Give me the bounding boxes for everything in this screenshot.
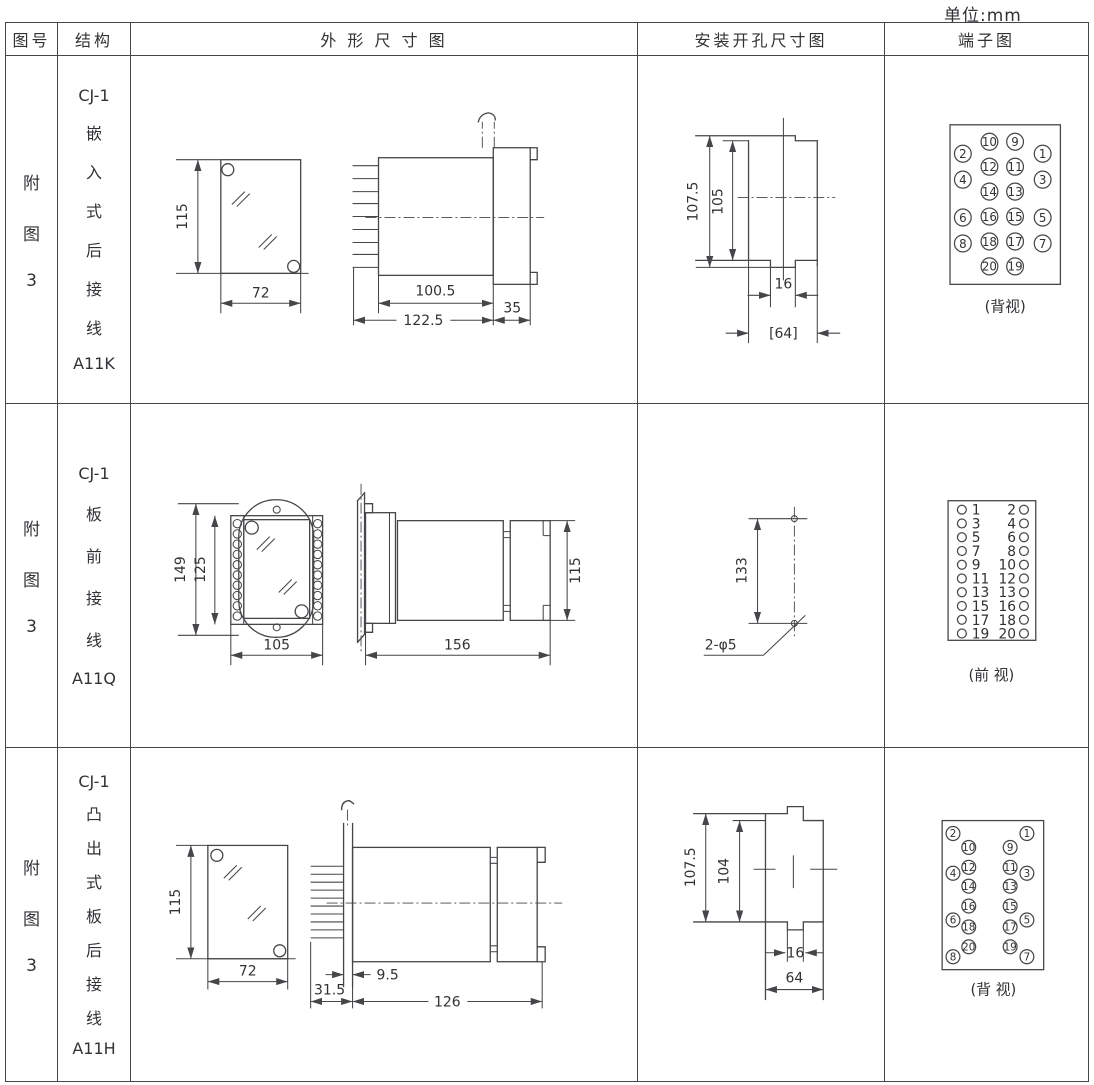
terminal-hole bbox=[957, 519, 966, 528]
terminal-number: 1 bbox=[1024, 828, 1031, 840]
terminal-hole bbox=[957, 615, 966, 624]
col-header-structure: 结构 bbox=[58, 23, 131, 56]
terminal-number: 5 bbox=[1024, 915, 1031, 927]
terminal-number: 1 bbox=[1039, 147, 1047, 161]
dim-cutout-inner-height: 105 bbox=[711, 188, 727, 215]
structure-line: CJ-1 bbox=[78, 772, 109, 791]
terminal-number: 14 bbox=[982, 185, 997, 199]
terminal-box bbox=[942, 821, 1043, 970]
terminal-number: 14 bbox=[962, 881, 976, 893]
terminal-number: 17 bbox=[1004, 922, 1017, 934]
outline-drawing-a11h: 115 72 9.5 31.5 126 bbox=[131, 748, 637, 1081]
structure-line: 出 bbox=[86, 835, 102, 859]
structure-line: 接 bbox=[86, 971, 102, 995]
terminal-strip-holes bbox=[233, 519, 322, 620]
structure-line: CJ-1 bbox=[78, 464, 109, 483]
terminal-number: 2 bbox=[959, 147, 967, 161]
terminal-number: 11 bbox=[1004, 862, 1017, 874]
terminal-number: 15 bbox=[1004, 901, 1017, 913]
figure-no-char: 图 bbox=[23, 905, 40, 930]
terminal-number: 13 bbox=[1004, 881, 1017, 893]
terminal-number: 7 bbox=[1024, 951, 1031, 963]
terminal-hole bbox=[1020, 505, 1029, 514]
terminal-hole bbox=[957, 574, 966, 583]
terminal-number: 19 bbox=[972, 626, 990, 642]
outline-drawing-a11q: 149 125 105 115 156 bbox=[131, 404, 637, 747]
dim-slot-width: 64 bbox=[786, 971, 804, 987]
structure-line: 式 bbox=[86, 198, 102, 222]
terminal-number: 10 bbox=[982, 135, 997, 149]
figure-no-char: 3 bbox=[26, 271, 37, 291]
terminal-number: 6 bbox=[950, 915, 957, 927]
terminal-number: 12 bbox=[982, 160, 997, 174]
dim-flange-thickness: 9.5 bbox=[377, 968, 399, 984]
terminal-number: 18 bbox=[962, 922, 975, 934]
terminal-number: 16 bbox=[962, 901, 975, 913]
dim-body-length: 126 bbox=[434, 994, 461, 1010]
dim-hole-callout: 2-φ5 bbox=[705, 637, 737, 653]
terminal-number: 9 bbox=[1011, 135, 1019, 149]
terminal-hole bbox=[957, 546, 966, 555]
install-drawing-a11k: 107.5 105 16 [64] bbox=[638, 56, 884, 403]
terminal-number: 15 bbox=[1008, 210, 1023, 224]
structure-line: CJ-1 bbox=[78, 86, 109, 105]
view-label: (背 视) bbox=[971, 981, 1017, 998]
figure-no-char: 附 bbox=[23, 515, 40, 540]
terminal-number: 5 bbox=[1039, 211, 1047, 225]
row1-structure: CJ-1 嵌 入 式 后 接 线 A11K bbox=[58, 56, 131, 404]
terminal-number: 6 bbox=[959, 211, 967, 225]
row2-figure-no: 附 图 3 bbox=[6, 404, 58, 748]
terminal-hole bbox=[1020, 574, 1029, 583]
view-label: (背视) bbox=[985, 297, 1026, 315]
terminal-hole bbox=[1020, 629, 1029, 638]
structure-line: A11K bbox=[73, 354, 115, 373]
dim-total-length: 122.5 bbox=[403, 313, 443, 329]
structure-line: 凸 bbox=[86, 801, 102, 825]
structure-line: 板 bbox=[86, 903, 102, 927]
terminal-diagram-rear-view: (背 视) 1012141618209111315171921874635 bbox=[885, 748, 1088, 1081]
structure-line: 线 bbox=[86, 627, 102, 651]
structure-line: A11H bbox=[72, 1039, 115, 1058]
install-drawing-a11h: 107.5 104 16 64 bbox=[638, 748, 884, 1081]
outline-drawing-a11k: 115 72 100.5 122.5 35 bbox=[131, 56, 637, 403]
dim-cutout-outer-height: 107.5 bbox=[686, 182, 702, 222]
row3-install-cell: 107.5 104 16 64 bbox=[638, 748, 885, 1081]
terminal-diagram-rear-view: (背视) 1091211141316151817201924681357 bbox=[885, 56, 1088, 403]
terminal-hole bbox=[957, 602, 966, 611]
col-header-terminal: 端子图 bbox=[885, 23, 1088, 56]
page: { "unit_label": "单位:mm", "header": ["图号"… bbox=[0, 0, 1094, 1085]
row2-install-cell: 133 2-φ5 bbox=[638, 404, 885, 748]
terminal-hole bbox=[957, 505, 966, 514]
dim-cutout-inner-height: 104 bbox=[717, 858, 733, 885]
dim-case-height: 125 bbox=[193, 556, 209, 583]
dim-notch-width: 16 bbox=[775, 276, 793, 292]
terminal-diagram-front-view: (前 视) 1234567891011121313151617181920 bbox=[885, 404, 1088, 747]
dim-slot-width: [64] bbox=[769, 326, 798, 342]
structure-line: 线 bbox=[86, 1005, 102, 1029]
terminal-hole bbox=[1020, 533, 1029, 542]
col-header-figure-no: 图号 bbox=[6, 23, 58, 56]
terminal-number: 20 bbox=[982, 260, 997, 274]
terminal-box bbox=[948, 501, 1036, 641]
row3-structure: CJ-1 凸 出 式 板 后 接 线 A11H bbox=[58, 748, 131, 1081]
terminal-number: 4 bbox=[959, 173, 967, 187]
row1-terminal-cell: (背视) 1091211141316151817201924681357 bbox=[885, 56, 1088, 404]
terminal-hole bbox=[1020, 546, 1029, 555]
terminal-number: 13 bbox=[1008, 185, 1023, 199]
terminal-number: 10 bbox=[962, 842, 975, 854]
install-drawing-a11q: 133 2-φ5 bbox=[638, 404, 884, 747]
dimension-table: 图号 结构 外 形 尺 寸 图 安装开孔尺寸图 端子图 附 图 3 CJ-1 嵌… bbox=[5, 22, 1089, 1082]
dim-front-height: 115 bbox=[175, 203, 191, 230]
row3-terminal-cell: (背 视) 1012141618209111315171921874635 bbox=[885, 748, 1088, 1081]
terminal-hole bbox=[1020, 602, 1029, 611]
terminal-number: 18 bbox=[982, 235, 997, 249]
dim-flange-depth: 35 bbox=[503, 300, 521, 316]
dim-front-height: 115 bbox=[168, 889, 184, 916]
terminal-number: 11 bbox=[1008, 160, 1023, 174]
terminal-hole bbox=[957, 588, 966, 597]
terminal-hole bbox=[1020, 615, 1029, 624]
terminal-number: 3 bbox=[1024, 868, 1031, 880]
terminal-number: 8 bbox=[950, 951, 957, 963]
row2-terminal-cell: (前 视) 1234567891011121313151617181920 bbox=[885, 404, 1088, 748]
terminal-number: 12 bbox=[962, 862, 975, 874]
structure-line: 式 bbox=[86, 869, 102, 893]
structure-line: 前 bbox=[86, 543, 102, 567]
row1-figure-no: 附 图 3 bbox=[6, 56, 58, 404]
row1-outline-cell: 115 72 100.5 122.5 35 bbox=[131, 56, 638, 404]
row2-structure: CJ-1 板 前 接 线 A11Q bbox=[58, 404, 131, 748]
terminal-hole bbox=[957, 560, 966, 569]
terminal-hole bbox=[957, 533, 966, 542]
row2-outline-cell: 149 125 105 115 156 bbox=[131, 404, 638, 748]
terminal-number: 2 bbox=[950, 828, 957, 840]
row1-install-cell: 107.5 105 16 [64] bbox=[638, 56, 885, 404]
terminal-number: 16 bbox=[982, 210, 997, 224]
dim-plate-height: 149 bbox=[173, 556, 189, 583]
figure-no-char: 3 bbox=[26, 956, 37, 976]
figure-no-char: 附 bbox=[23, 169, 40, 194]
terminal-number: 19 bbox=[1008, 260, 1023, 274]
dim-notch-width: 16 bbox=[787, 946, 805, 962]
structure-line: 线 bbox=[86, 315, 102, 339]
figure-no-char: 图 bbox=[23, 566, 40, 591]
dim-side-height: 115 bbox=[568, 557, 584, 584]
terminal-number: 8 bbox=[959, 237, 967, 251]
view-label: (前 视) bbox=[969, 666, 1015, 684]
structure-line: 入 bbox=[86, 159, 102, 183]
figure-no-char: 3 bbox=[26, 617, 37, 637]
terminal-number: 19 bbox=[1004, 942, 1017, 954]
structure-line: 后 bbox=[86, 237, 102, 261]
terminal-number: 20 bbox=[999, 626, 1017, 642]
terminal-hole bbox=[1020, 588, 1029, 597]
dim-front-length: 31.5 bbox=[314, 983, 345, 999]
dim-total-length: 156 bbox=[444, 637, 471, 653]
col-header-outline: 外 形 尺 寸 图 bbox=[131, 23, 638, 56]
structure-line: 嵌 bbox=[86, 120, 102, 144]
terminal-number: 17 bbox=[1008, 235, 1023, 249]
row3-outline-cell: 115 72 9.5 31.5 126 bbox=[131, 748, 638, 1081]
terminal-number: 3 bbox=[1039, 173, 1047, 187]
row3-figure-no: 附 图 3 bbox=[6, 748, 58, 1081]
dim-front-width: 72 bbox=[252, 285, 270, 301]
terminal-number: 7 bbox=[1039, 237, 1047, 251]
terminal-hole bbox=[1020, 560, 1029, 569]
figure-no-char: 图 bbox=[23, 220, 40, 245]
structure-line: 接 bbox=[86, 276, 102, 300]
terminal-hole bbox=[957, 629, 966, 638]
terminal-number: 20 bbox=[962, 942, 975, 954]
structure-line: A11Q bbox=[72, 669, 116, 688]
terminal-hole bbox=[1020, 519, 1029, 528]
figure-no-char: 附 bbox=[23, 854, 40, 879]
structure-line: 接 bbox=[86, 585, 102, 609]
structure-line: 板 bbox=[86, 501, 102, 525]
dim-front-width: 72 bbox=[239, 964, 257, 980]
dim-body-length: 100.5 bbox=[415, 283, 455, 299]
dim-cutout-outer-height: 107.5 bbox=[683, 847, 699, 887]
dim-front-width: 105 bbox=[263, 637, 290, 653]
terminal-number: 9 bbox=[1007, 842, 1014, 854]
terminal-number: 4 bbox=[950, 868, 957, 880]
structure-line: 后 bbox=[86, 937, 102, 961]
col-header-install: 安装开孔尺寸图 bbox=[638, 23, 885, 56]
dim-hole-span: 133 bbox=[735, 557, 751, 584]
